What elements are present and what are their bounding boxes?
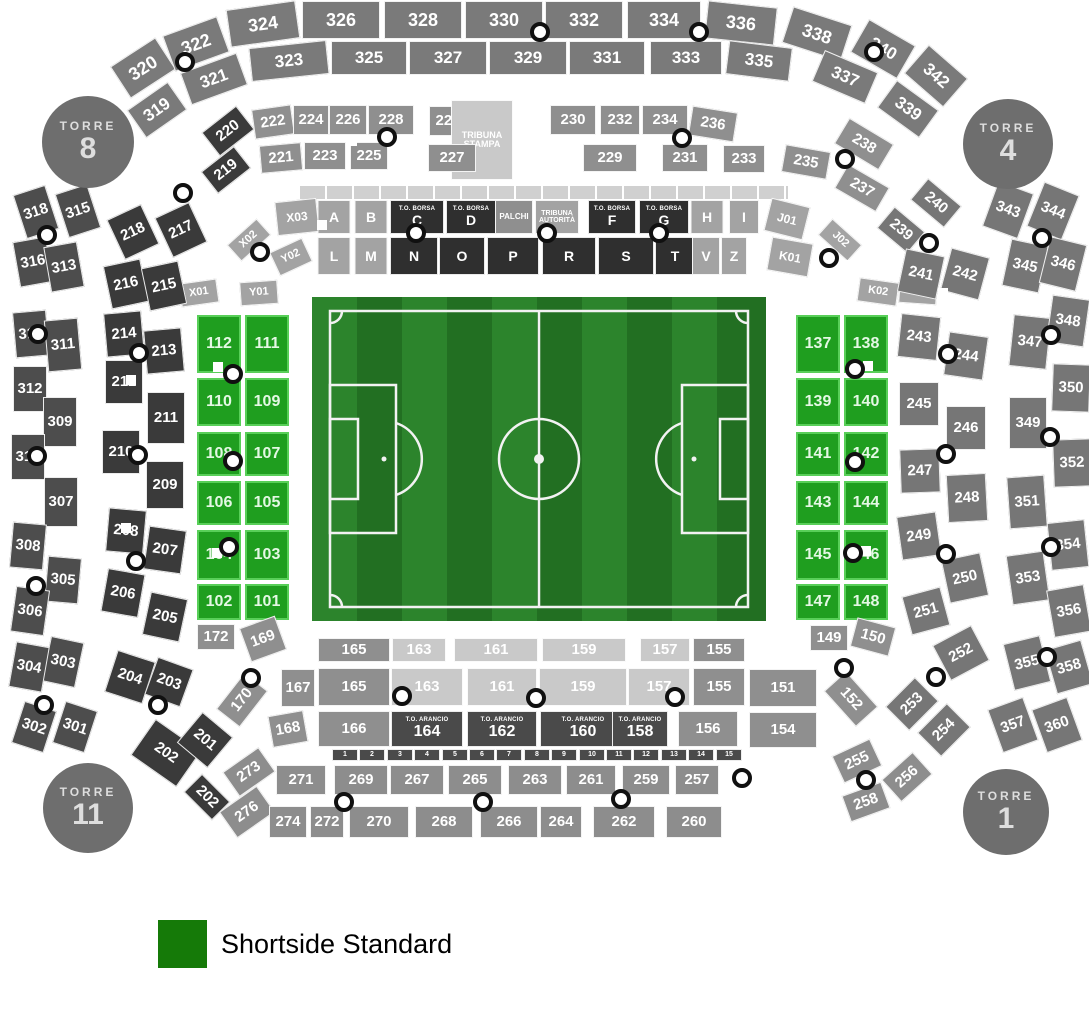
section-label: 211 xyxy=(154,410,178,426)
section-label: 269 xyxy=(348,772,373,788)
section-label: 258 xyxy=(852,790,881,813)
section-label: 106 xyxy=(206,495,233,512)
section-217[interactable]: 217 xyxy=(154,202,207,258)
section-label: 249 xyxy=(906,526,933,545)
seat-view-marker[interactable] xyxy=(834,658,854,678)
section-167[interactable]: 167 xyxy=(281,669,315,707)
seat-view-marker[interactable] xyxy=(28,324,48,344)
section-267[interactable]: 267 xyxy=(390,765,444,795)
section-271[interactable]: 271 xyxy=(276,765,326,795)
section-label: 139 xyxy=(805,394,832,411)
section-301[interactable]: 301 xyxy=(52,701,98,753)
section-label: 329 xyxy=(514,49,542,67)
section-237[interactable]: 237 xyxy=(834,164,890,212)
section-262[interactable]: 262 xyxy=(593,806,655,838)
section-107[interactable]: 107 xyxy=(245,432,289,476)
seat-view-marker[interactable] xyxy=(173,183,193,203)
seat-view-marker[interactable] xyxy=(936,544,956,564)
section-311[interactable]: 311 xyxy=(44,318,82,373)
section-label: 252 xyxy=(946,640,975,666)
section-label: 149 xyxy=(816,630,841,646)
section-label: 331 xyxy=(593,49,621,67)
section-label: 265 xyxy=(462,772,487,788)
section-336[interactable]: 336 xyxy=(704,0,778,45)
section-159[interactable]: 159 xyxy=(539,668,627,706)
section-353[interactable]: 353 xyxy=(1006,551,1051,606)
section-label: 155 xyxy=(706,642,731,658)
section-label: R xyxy=(564,249,574,264)
section-p[interactable]: P xyxy=(487,237,539,275)
seat-view-marker[interactable] xyxy=(223,451,243,471)
section-159[interactable]: 159 xyxy=(542,638,626,662)
section-r[interactable]: R xyxy=(542,237,596,275)
section-102[interactable]: 102 xyxy=(197,584,241,620)
section-352[interactable]: 352 xyxy=(1052,438,1089,487)
section-101[interactable]: 101 xyxy=(245,584,289,620)
section-260[interactable]: 260 xyxy=(666,806,722,838)
seat-view-marker[interactable] xyxy=(392,686,412,706)
section-k01[interactable]: K01 xyxy=(766,237,813,278)
section-331[interactable]: 331 xyxy=(569,41,645,75)
section-309[interactable]: 309 xyxy=(43,397,77,447)
section-220[interactable]: 220 xyxy=(201,106,254,157)
section-label: 224 xyxy=(298,112,323,128)
section-label: 207 xyxy=(152,540,179,559)
section-label: H xyxy=(702,210,712,225)
section-356[interactable]: 356 xyxy=(1046,584,1089,638)
section-label: 223 xyxy=(312,148,337,164)
section-268[interactable]: 268 xyxy=(415,806,473,838)
section-148[interactable]: 148 xyxy=(844,584,888,620)
section-261[interactable]: 261 xyxy=(566,765,616,795)
section-label: 112 xyxy=(206,336,232,353)
section-106[interactable]: 106 xyxy=(197,481,241,525)
section-218[interactable]: 218 xyxy=(106,204,159,260)
seat-view-marker[interactable] xyxy=(864,42,884,62)
section-151[interactable]: 151 xyxy=(749,669,817,707)
section-156[interactable]: 156 xyxy=(678,711,738,747)
section-label: 206 xyxy=(109,583,136,603)
section-239[interactable]: 239 xyxy=(877,206,926,253)
section-label: 218 xyxy=(118,220,147,245)
section-172[interactable]: 172 xyxy=(197,624,235,650)
section-263[interactable]: 263 xyxy=(508,765,562,795)
section-label: 241 xyxy=(907,264,935,285)
section-308[interactable]: 308 xyxy=(9,522,47,571)
section-357[interactable]: 357 xyxy=(987,697,1038,753)
section-307[interactable]: 307 xyxy=(44,477,78,527)
section-13[interactable]: 13 xyxy=(661,749,687,761)
section-211[interactable]: 211 xyxy=(147,392,185,444)
section-249[interactable]: 249 xyxy=(896,511,942,560)
section-137[interactable]: 137 xyxy=(796,315,840,373)
section-327[interactable]: 327 xyxy=(409,41,487,75)
seat-view-marker[interactable] xyxy=(938,344,958,364)
seat-view-marker[interactable] xyxy=(1041,325,1061,345)
section-215[interactable]: 215 xyxy=(141,261,187,312)
section-label: 276 xyxy=(232,798,262,825)
pitch-graphic xyxy=(312,297,766,621)
seat-view-marker[interactable] xyxy=(175,52,195,72)
seat-view-marker[interactable] xyxy=(473,792,493,812)
section-label: 321 xyxy=(198,66,231,92)
section-226[interactable]: 226 xyxy=(329,105,367,135)
section-label: 245 xyxy=(906,396,931,412)
section-245[interactable]: 245 xyxy=(899,382,939,426)
section-139[interactable]: 139 xyxy=(796,378,840,426)
seat-view-marker[interactable] xyxy=(1041,537,1061,557)
section-265[interactable]: 265 xyxy=(448,765,502,795)
seat-view-marker[interactable] xyxy=(129,343,149,363)
section-b[interactable]: B xyxy=(355,200,388,234)
section-label: 267 xyxy=(404,772,429,788)
section-103[interactable]: 103 xyxy=(245,530,289,580)
section-label: 225 xyxy=(356,148,381,164)
section-x03[interactable]: X03 xyxy=(274,198,319,236)
section-338[interactable]: 338 xyxy=(782,6,853,61)
section-1[interactable]: 1 xyxy=(332,749,358,761)
section-207[interactable]: 207 xyxy=(143,526,187,575)
section-label: 166 xyxy=(341,721,366,737)
seat-view-marker[interactable] xyxy=(819,248,839,268)
section-label: 344 xyxy=(1038,199,1067,223)
section-221[interactable]: 221 xyxy=(259,142,303,174)
section-label: 311 xyxy=(50,336,75,354)
section-266[interactable]: 266 xyxy=(480,806,538,838)
section-5[interactable]: 5 xyxy=(442,749,468,761)
section-label: 148 xyxy=(853,594,880,611)
section-248[interactable]: 248 xyxy=(946,473,988,523)
section-229[interactable]: 229 xyxy=(583,144,637,172)
section-label: 253 xyxy=(898,690,927,719)
seat-view-marker[interactable] xyxy=(665,687,685,707)
section-label: J01 xyxy=(776,210,798,227)
section-l[interactable]: L xyxy=(318,237,351,275)
section-label: 13 xyxy=(670,751,678,758)
section-206[interactable]: 206 xyxy=(100,568,145,618)
section-label: 263 xyxy=(522,772,547,788)
section-d[interactable]: T.O. BORSAD xyxy=(446,200,496,234)
section-label: 358 xyxy=(1055,656,1083,678)
seat-view-marker[interactable] xyxy=(27,446,47,466)
section-2[interactable]: 2 xyxy=(359,749,385,761)
section-145[interactable]: 145 xyxy=(796,530,840,580)
section-329[interactable]: 329 xyxy=(489,41,567,75)
section-label: 266 xyxy=(496,814,521,830)
section-165[interactable]: 165 xyxy=(318,638,390,662)
seat-view-marker[interactable] xyxy=(919,233,939,253)
section-i[interactable]: I xyxy=(729,200,759,234)
tower-number: 4 xyxy=(1000,135,1017,167)
section-label: 3 xyxy=(398,751,402,758)
section-224[interactable]: 224 xyxy=(293,105,329,135)
section-243[interactable]: 243 xyxy=(897,313,941,361)
section-label: 305 xyxy=(50,571,76,589)
section-169[interactable]: 169 xyxy=(239,616,287,663)
section-label: A xyxy=(329,210,339,225)
section-209[interactable]: 209 xyxy=(146,461,184,509)
section-166[interactable]: 166 xyxy=(318,711,390,747)
seat-view-marker[interactable] xyxy=(128,445,148,465)
section-257[interactable]: 257 xyxy=(675,765,719,795)
section-label: 137 xyxy=(805,336,832,353)
seat-view-marker[interactable] xyxy=(649,223,669,243)
section-label: 268 xyxy=(431,814,456,830)
section-4[interactable]: 4 xyxy=(414,749,440,761)
section-324[interactable]: 324 xyxy=(226,0,301,47)
section-312[interactable]: 312 xyxy=(13,366,47,412)
section-157[interactable]: 157 xyxy=(640,638,690,662)
section-label: 320 xyxy=(125,52,160,84)
section-label: 222 xyxy=(260,112,287,131)
section-105[interactable]: 105 xyxy=(245,481,289,525)
section-label: 12 xyxy=(642,751,650,758)
seat-view-marker[interactable] xyxy=(334,792,354,812)
seat-view-marker[interactable] xyxy=(672,128,692,148)
seat-view-marker[interactable] xyxy=(406,223,426,243)
section-7[interactable]: 7 xyxy=(496,749,522,761)
seat-view-marker[interactable] xyxy=(526,688,546,708)
section-232[interactable]: 232 xyxy=(600,105,640,135)
seat-view-marker[interactable] xyxy=(34,695,54,715)
tower-word: TORRE xyxy=(978,789,1035,803)
section-313[interactable]: 313 xyxy=(43,241,84,292)
section-label: 1 xyxy=(343,751,347,758)
seat-view-marker[interactable] xyxy=(1040,427,1060,447)
seat-view-marker[interactable] xyxy=(835,149,855,169)
section-162[interactable]: T.O. ARANCIO162 xyxy=(467,711,537,747)
section-12[interactable]: 12 xyxy=(633,749,659,761)
section-161[interactable]: 161 xyxy=(454,638,538,662)
section-label: 350 xyxy=(1058,380,1084,397)
section-label: 309 xyxy=(47,414,72,430)
section-label: 203 xyxy=(155,670,184,693)
section-109[interactable]: 109 xyxy=(245,378,289,426)
tower-1: TORRE1 xyxy=(963,769,1049,855)
section-155[interactable]: 155 xyxy=(693,638,745,662)
section-label: 161 xyxy=(483,642,508,658)
section-227[interactable]: 227 xyxy=(428,144,476,172)
section-label: 304 xyxy=(15,657,42,677)
section-11[interactable]: 11 xyxy=(606,749,632,761)
section-label: 273 xyxy=(234,758,264,785)
section-328[interactable]: 328 xyxy=(384,1,462,39)
section-236[interactable]: 236 xyxy=(688,106,738,143)
section-256[interactable]: 256 xyxy=(881,752,932,802)
section-325[interactable]: 325 xyxy=(331,41,407,75)
section-h[interactable]: H xyxy=(691,200,724,234)
section-label: 213 xyxy=(151,342,177,360)
section-150[interactable]: 150 xyxy=(850,617,896,656)
seat-view-marker[interactable] xyxy=(241,668,261,688)
section-247[interactable]: 247 xyxy=(899,448,941,493)
section-360[interactable]: 360 xyxy=(1031,697,1082,753)
section-269[interactable]: 269 xyxy=(334,765,388,795)
section-label: 217 xyxy=(166,218,195,243)
seat-view-marker[interactable] xyxy=(845,452,865,472)
section-246[interactable]: 246 xyxy=(946,406,986,450)
section-v[interactable]: V xyxy=(692,237,720,275)
gate-notch xyxy=(938,288,948,298)
seat-view-marker[interactable] xyxy=(250,242,270,262)
section-label: TRIBUNA AUTORITÀ xyxy=(536,210,578,225)
section-276[interactable]: 276 xyxy=(219,786,275,839)
section-303[interactable]: 303 xyxy=(42,636,85,688)
section-label: 326 xyxy=(326,11,356,30)
section-o[interactable]: O xyxy=(439,237,485,275)
section-240[interactable]: 240 xyxy=(910,178,962,228)
section-label: 226 xyxy=(335,112,360,128)
section-y02[interactable]: Y02 xyxy=(269,238,313,277)
section-label: 209 xyxy=(152,477,177,493)
tower-8: TORRE8 xyxy=(42,96,134,188)
section-305[interactable]: 305 xyxy=(44,556,82,605)
section-168[interactable]: 168 xyxy=(267,710,308,748)
section-label: 158 xyxy=(627,724,654,741)
section-216[interactable]: 216 xyxy=(103,259,149,310)
section-10[interactable]: 10 xyxy=(579,749,605,761)
seat-view-marker[interactable] xyxy=(377,127,397,147)
section-222[interactable]: 222 xyxy=(251,104,295,139)
section-141[interactable]: 141 xyxy=(796,432,840,476)
section-label: N xyxy=(409,249,419,264)
section-label: 257 xyxy=(684,772,709,788)
section-label: X01 xyxy=(188,286,209,300)
section-152[interactable]: 152 xyxy=(824,671,878,727)
seat-view-marker[interactable] xyxy=(926,667,946,687)
section-212[interactable]: 212 xyxy=(105,360,143,404)
seat-view-marker[interactable] xyxy=(843,543,863,563)
section-label: 251 xyxy=(912,600,940,622)
section-164[interactable]: T.O. ARANCIO164 xyxy=(391,711,463,747)
seat-view-marker[interactable] xyxy=(1032,228,1052,248)
section-9[interactable]: 9 xyxy=(551,749,577,761)
section-label: 353 xyxy=(1015,568,1042,587)
section-219[interactable]: 219 xyxy=(201,146,251,194)
section-351[interactable]: 351 xyxy=(1006,475,1048,530)
legend: Shortside Standard xyxy=(158,920,452,968)
section-label: 342 xyxy=(919,60,952,92)
section-350[interactable]: 350 xyxy=(1051,363,1089,412)
section-205[interactable]: 205 xyxy=(142,592,188,643)
section-label: 228 xyxy=(378,112,403,128)
section-6[interactable]: 6 xyxy=(469,749,495,761)
section-323[interactable]: 323 xyxy=(248,40,329,82)
section-326[interactable]: 326 xyxy=(302,1,380,39)
section-8[interactable]: 8 xyxy=(524,749,550,761)
section-259[interactable]: 259 xyxy=(622,765,670,795)
section-333[interactable]: 333 xyxy=(650,41,722,75)
seat-view-marker[interactable] xyxy=(611,789,631,809)
upper-walkway-band xyxy=(300,186,788,199)
section-165[interactable]: 165 xyxy=(318,668,390,706)
section-304[interactable]: 304 xyxy=(8,641,49,692)
section-3[interactable]: 3 xyxy=(387,749,413,761)
section-154[interactable]: 154 xyxy=(749,712,817,748)
section-213[interactable]: 213 xyxy=(143,327,185,374)
section-14[interactable]: 14 xyxy=(688,749,714,761)
section-m[interactable]: M xyxy=(355,237,388,275)
section-label: 143 xyxy=(805,495,832,512)
section-230[interactable]: 230 xyxy=(550,105,596,135)
seat-view-marker[interactable] xyxy=(219,537,239,557)
section-y01[interactable]: Y01 xyxy=(239,280,279,307)
section-149[interactable]: 149 xyxy=(810,625,848,651)
section-label: 250 xyxy=(951,568,979,589)
section-223[interactable]: 223 xyxy=(304,142,346,170)
section-332[interactable]: 332 xyxy=(545,1,623,39)
section-158[interactable]: T.O. ARANCIO158 xyxy=(612,711,668,747)
section-163[interactable]: 163 xyxy=(392,638,446,662)
section-label: 105 xyxy=(254,495,281,512)
section-111[interactable]: 111 xyxy=(245,315,289,373)
seat-view-marker[interactable] xyxy=(530,22,550,42)
seat-view-marker[interactable] xyxy=(26,576,46,596)
section-270[interactable]: 270 xyxy=(349,806,409,838)
section-143[interactable]: 143 xyxy=(796,481,840,525)
section-147[interactable]: 147 xyxy=(796,584,840,620)
seat-view-marker[interactable] xyxy=(732,768,752,788)
section-label: 259 xyxy=(633,772,658,788)
section-label: 337 xyxy=(828,63,861,91)
section-335[interactable]: 335 xyxy=(725,40,793,82)
section-label: 216 xyxy=(112,274,140,295)
section-15[interactable]: 15 xyxy=(716,749,742,761)
section-k02[interactable]: K02 xyxy=(857,277,900,306)
section-s[interactable]: S xyxy=(598,237,654,275)
seat-view-marker[interactable] xyxy=(856,770,876,790)
section-251[interactable]: 251 xyxy=(902,587,951,636)
section-140[interactable]: 140 xyxy=(844,378,888,426)
section-f[interactable]: T.O. BORSAF xyxy=(588,200,636,234)
section-264[interactable]: 264 xyxy=(540,806,582,838)
section-235[interactable]: 235 xyxy=(781,144,831,180)
seat-view-marker[interactable] xyxy=(537,223,557,243)
section-label: 219 xyxy=(211,156,240,184)
section-label: 347 xyxy=(1017,333,1044,351)
seat-view-marker[interactable] xyxy=(148,695,168,715)
seat-view-marker[interactable] xyxy=(37,225,57,245)
seat-view-marker[interactable] xyxy=(845,359,865,379)
section-110[interactable]: 110 xyxy=(197,378,241,426)
section-palchi[interactable]: PALCHI xyxy=(495,200,533,234)
tower-11: TORRE11 xyxy=(43,763,133,853)
section-label: 172 xyxy=(203,629,228,645)
section-label: 229 xyxy=(597,150,622,166)
seat-view-marker[interactable] xyxy=(1037,647,1057,667)
section-label: M xyxy=(365,249,377,264)
section-label: 101 xyxy=(254,594,281,611)
section-label: Z xyxy=(730,249,739,264)
section-label: I xyxy=(742,210,746,225)
section-label: D xyxy=(466,213,476,228)
section-343[interactable]: 343 xyxy=(982,181,1034,239)
section-label: 102 xyxy=(206,594,233,611)
seat-view-marker[interactable] xyxy=(223,364,243,384)
section-label: 165 xyxy=(341,642,366,658)
seat-view-marker[interactable] xyxy=(126,551,146,571)
section-315[interactable]: 315 xyxy=(55,184,102,238)
section-233[interactable]: 233 xyxy=(723,145,765,173)
section-j01[interactable]: J01 xyxy=(763,198,810,241)
section-155[interactable]: 155 xyxy=(693,668,745,706)
section-274[interactable]: 274 xyxy=(269,806,307,838)
seat-view-marker[interactable] xyxy=(936,444,956,464)
section-z[interactable]: Z xyxy=(721,237,747,275)
section-144[interactable]: 144 xyxy=(844,481,888,525)
section-231[interactable]: 231 xyxy=(662,144,708,172)
seat-view-marker[interactable] xyxy=(689,22,709,42)
